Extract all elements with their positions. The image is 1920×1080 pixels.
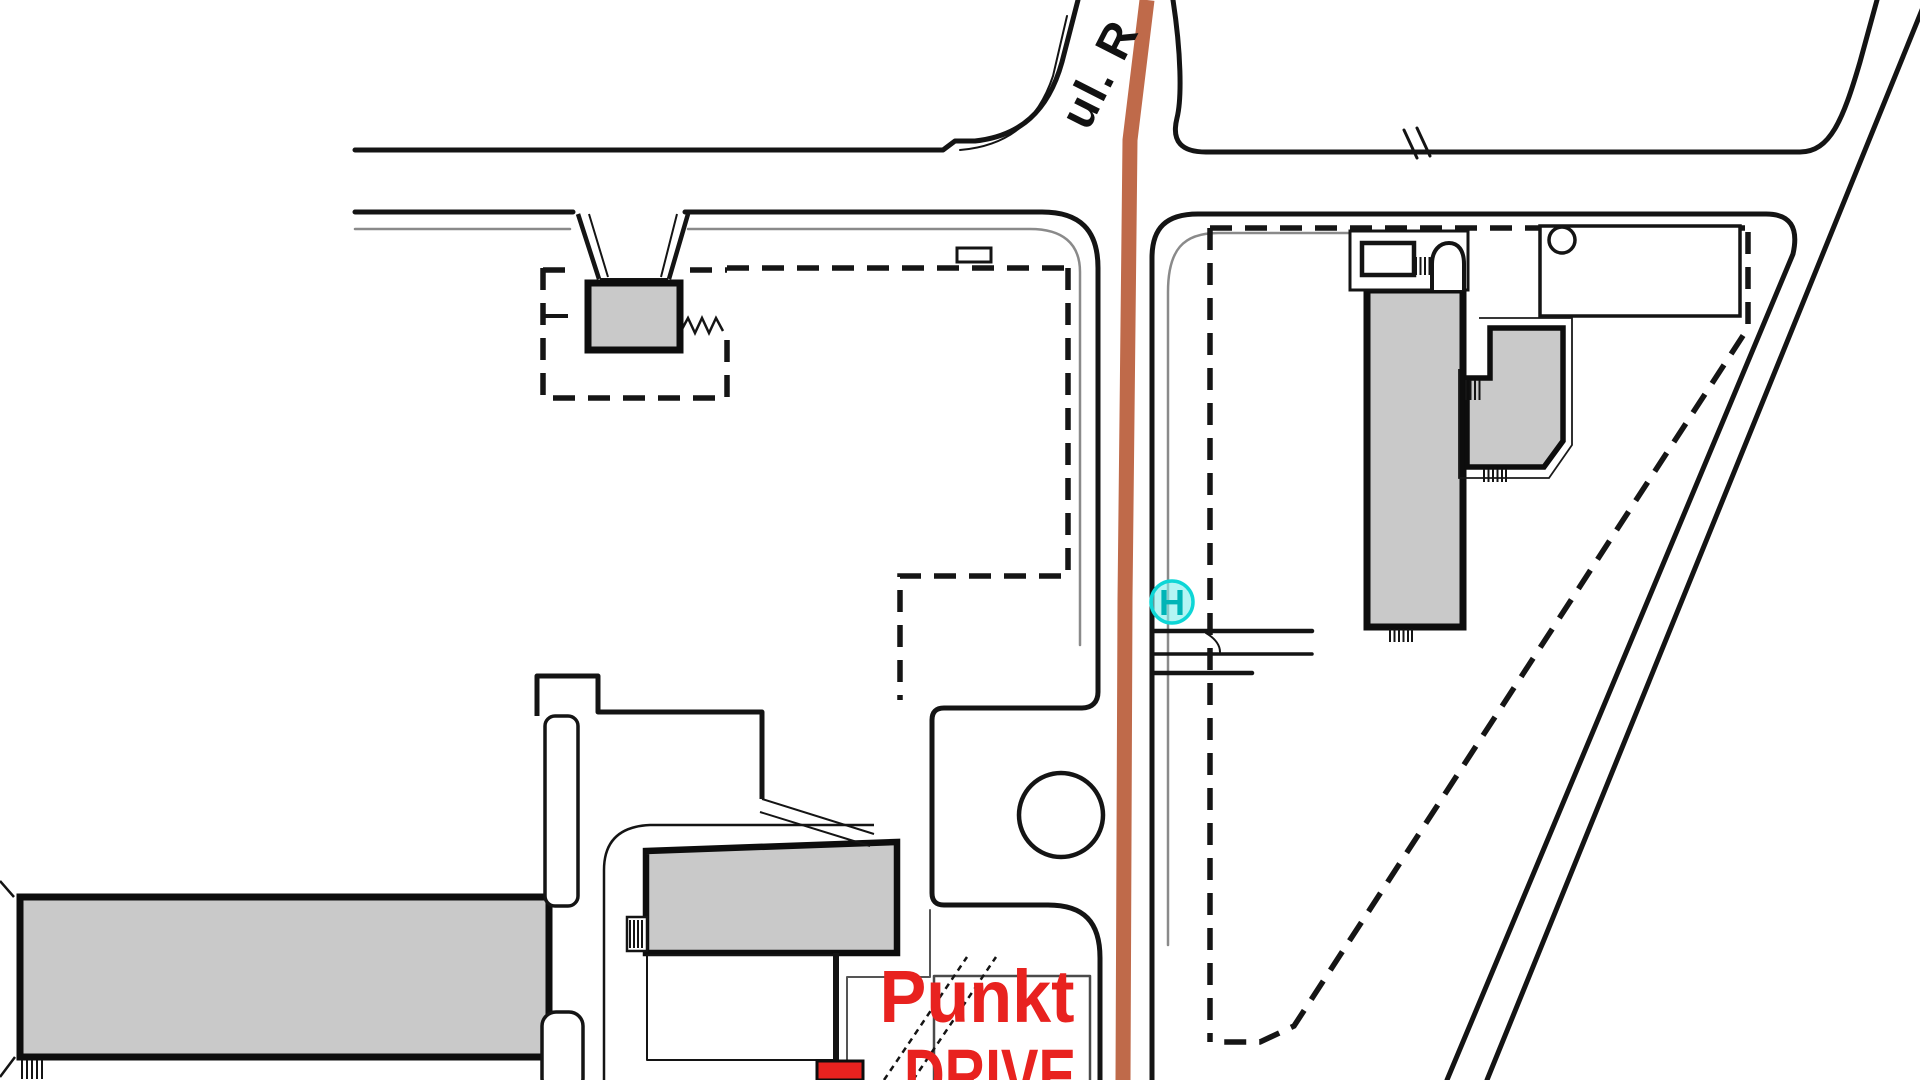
sw-corner-tick-bottom (0, 1057, 15, 1077)
hatch-under-sw-building (22, 1060, 42, 1079)
street-highlight-line (1123, 0, 1147, 1080)
yard-outline (647, 955, 836, 1060)
road-edge-top-left (355, 0, 1078, 150)
poi-label-line2: DRIVE (904, 1034, 1076, 1080)
sw-corner-tick-top (0, 881, 14, 897)
funnel-inner (589, 214, 677, 279)
road-edge-top-right (1173, 0, 1877, 152)
entrance-inner-rect (1362, 243, 1414, 275)
ne-entrance-structure (1350, 231, 1468, 290)
site-plan-map: H ul. R Punkt DRIVE (0, 0, 1920, 1080)
road-edge-west-inner (355, 229, 1080, 645)
curb-slant-pair (760, 799, 874, 846)
fence-squiggle (681, 318, 723, 333)
traffic-island-small (542, 1012, 583, 1080)
building-nw-small (588, 283, 680, 350)
boundary-marker-rect (957, 248, 991, 262)
poi-label-line1: Punkt (880, 955, 1075, 1038)
ne-plot-hook (1549, 227, 1575, 253)
building-sw-large (20, 897, 549, 1057)
building-center (646, 842, 897, 953)
hydrant-marker: H (1151, 581, 1193, 623)
diagonal-road-edge (1487, 0, 1920, 1080)
tree-circle (1019, 773, 1103, 857)
hatch-under-lshape (1484, 469, 1506, 482)
poi-marker-square (817, 1061, 863, 1080)
driveway-funnel (578, 214, 688, 279)
road-outlines (355, 0, 1920, 1080)
traffic-island-tall (545, 716, 578, 906)
funnel-outer (578, 214, 688, 279)
parcel-center-boundary (727, 268, 1068, 700)
map-canvas: H ul. R Punkt DRIVE (0, 0, 1920, 1080)
building-ne-lshape (1467, 328, 1563, 467)
hatch-under-ne-building (1390, 629, 1412, 642)
road-edge-east (1152, 214, 1795, 1080)
building-ne-large (1367, 290, 1463, 627)
entrance-dome (1432, 243, 1464, 290)
hydrant-letter: H (1159, 582, 1185, 623)
